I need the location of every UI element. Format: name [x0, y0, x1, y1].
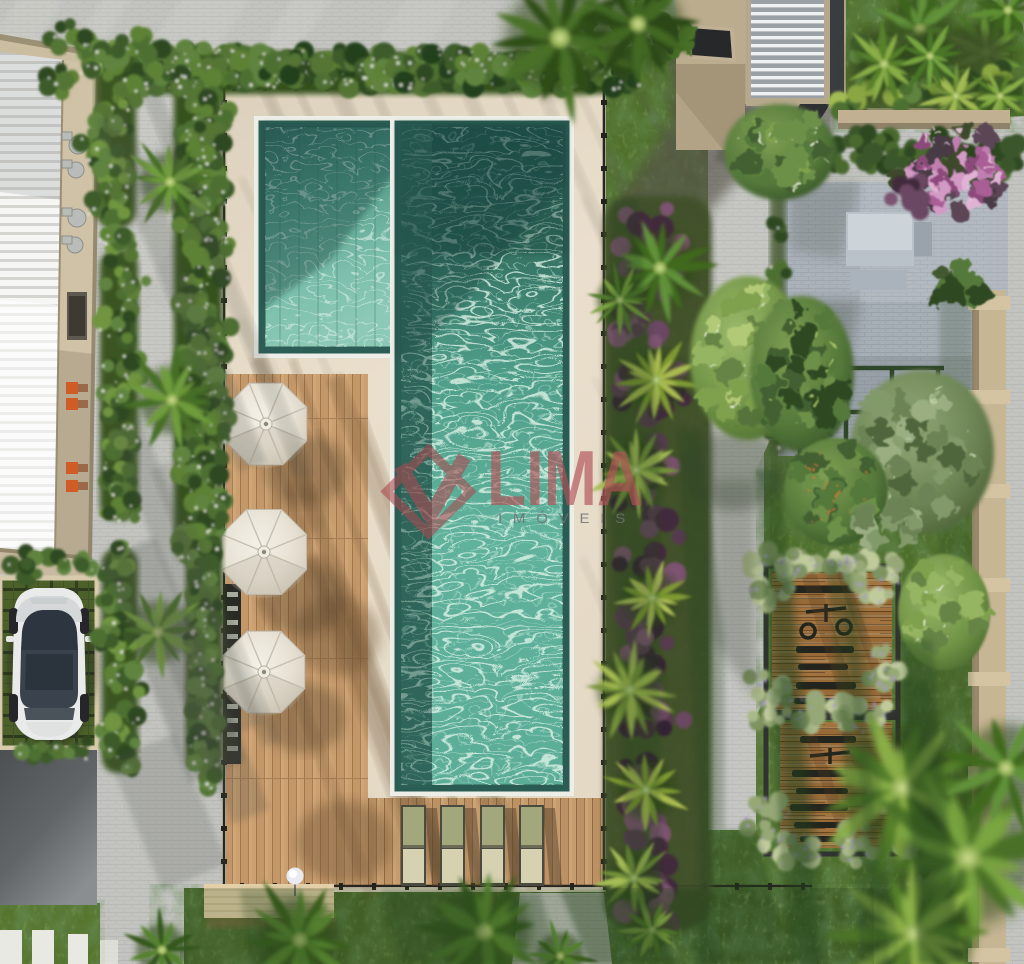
svg-text:IMÓVEIS: IMÓVEIS	[498, 510, 636, 526]
svg-text:LIMA: LIMA	[487, 434, 643, 522]
